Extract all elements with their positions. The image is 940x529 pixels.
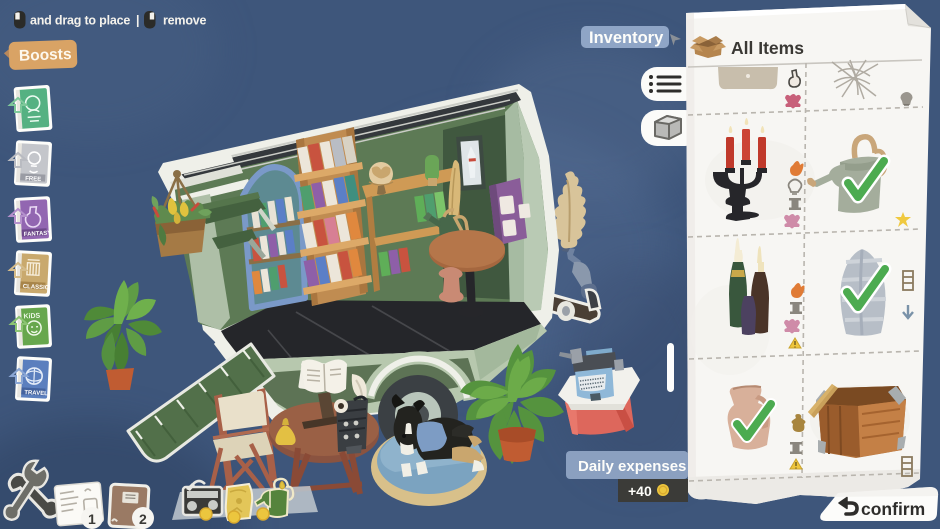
svg-text:+40: +40 — [628, 483, 652, 499]
svg-text:Inventory: Inventory — [589, 29, 664, 47]
svg-text:1: 1 — [88, 511, 96, 527]
svg-text:Boosts: Boosts — [19, 46, 72, 65]
svg-text:2: 2 — [139, 511, 147, 527]
svg-text:remove: remove — [163, 14, 207, 28]
svg-text:and drag to place: and drag to place — [30, 14, 130, 28]
svg-text:All Items: All Items — [731, 38, 804, 58]
svg-text:confirm: confirm — [861, 499, 925, 519]
svg-text:KiDS: KiDS — [23, 313, 40, 321]
svg-text:Daily expenses: Daily expenses — [578, 458, 686, 475]
svg-text:|: | — [136, 14, 140, 28]
svg-text:FREE: FREE — [25, 176, 41, 183]
svg-text:TRAVEL: TRAVEL — [24, 390, 48, 397]
